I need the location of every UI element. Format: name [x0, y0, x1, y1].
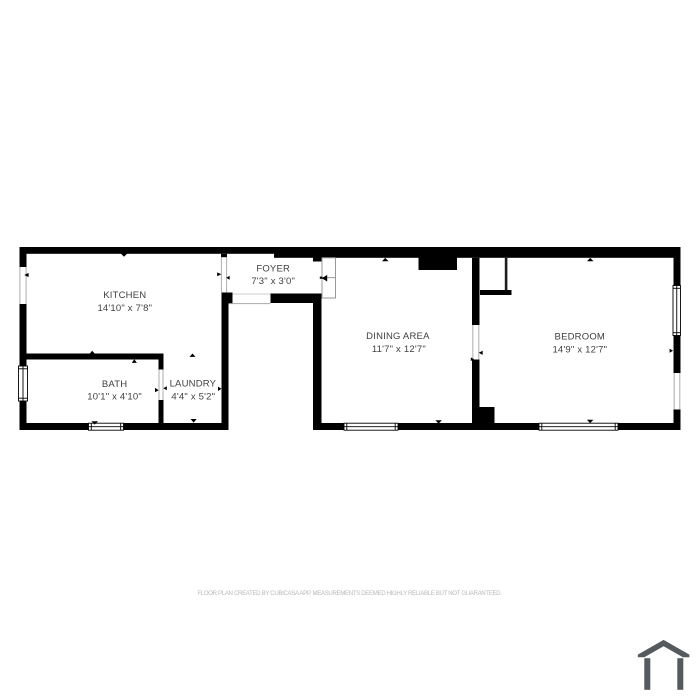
svg-text:7'3" x 3'0": 7'3" x 3'0" [251, 276, 295, 287]
svg-text:FLOOR PLAN CREATED BY CUBICASA: FLOOR PLAN CREATED BY CUBICASA APP. MEAS… [197, 590, 502, 597]
svg-text:BATH: BATH [102, 379, 127, 390]
svg-text:14'10" x 7'8": 14'10" x 7'8" [97, 303, 152, 314]
svg-text:DINING AREA: DINING AREA [366, 331, 430, 342]
svg-text:FOYER: FOYER [256, 263, 290, 274]
svg-text:11'7" x 12'7": 11'7" x 12'7" [372, 344, 426, 355]
svg-text:LAUNDRY: LAUNDRY [170, 379, 217, 390]
svg-text:4'4" x 5'2": 4'4" x 5'2" [171, 391, 215, 402]
svg-text:14'9" x 12'7": 14'9" x 12'7" [552, 345, 607, 356]
svg-text:KITCHEN: KITCHEN [103, 290, 146, 301]
svg-text:BEDROOM: BEDROOM [555, 331, 606, 342]
svg-text:10'1" x 4'10": 10'1" x 4'10" [87, 391, 142, 402]
